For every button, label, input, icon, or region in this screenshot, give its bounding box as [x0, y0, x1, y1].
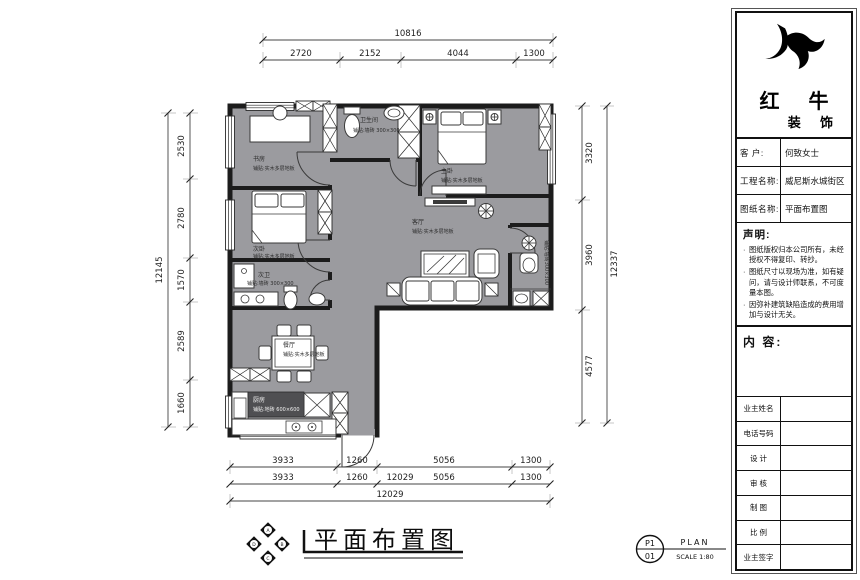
note-kitchen: 铺贴:地砖 600×600: [253, 406, 300, 413]
label-second: 次卧: [253, 245, 265, 253]
brand-area: 红 牛 装 饰: [737, 13, 851, 139]
sheet-ref: P1 01 PLAN SCALE 1:80: [637, 536, 727, 563]
sign-value: [781, 422, 851, 446]
dim-left-1: 2530: [177, 135, 187, 157]
sign-value: [781, 397, 851, 421]
sheet-scale: SCALE 1:80: [676, 553, 714, 561]
label-bath-top: 卫生间: [360, 116, 378, 124]
statement-section: 声明: 图纸版权归本公司所有，未经授权不得复印、转抄。 图纸尺寸以现场为准，如有…: [737, 223, 851, 327]
note-second: 铺贴:实木多层地板: [253, 253, 295, 260]
label-study: 书房: [253, 155, 265, 163]
sheet-code-bottom: 01: [645, 552, 655, 561]
kitchen-fixtures: [232, 392, 336, 435]
dim-top-total: 10816: [394, 29, 421, 39]
dim-left-3: 1570: [177, 269, 187, 291]
field-client-label: 客 户:: [737, 139, 781, 166]
label-dining: 餐厅: [283, 341, 295, 349]
plan-title: 平面布置图: [314, 527, 459, 554]
drawing-sheet: 10816 2720 2152 4044 1300 12145 2530 278…: [0, 0, 860, 580]
dim-top-3: 4044: [447, 49, 469, 59]
brand-name: 红 牛: [737, 85, 851, 114]
plan-title-group: A B C D 平面布置图: [246, 522, 463, 566]
sign-value: [781, 446, 851, 470]
sign-label: 制 图: [737, 496, 781, 520]
note-second-bath: 铺贴:墙砖 300×300: [247, 280, 294, 287]
label-living: 客厅: [412, 218, 424, 226]
field-project: 工程名称: 威尼斯水城街区: [737, 167, 851, 195]
sign-label: 电话号码: [737, 422, 781, 446]
sign-value: [781, 545, 851, 569]
signature-table: 业主姓名 电话号码 设 计 审 核 制 图 比 例 业主签字: [737, 397, 851, 569]
note-master: 铺贴:实木多层地板: [441, 177, 483, 184]
sheet-label: PLAN: [681, 538, 710, 547]
sign-row-owner-sign: 业主签字: [737, 545, 851, 569]
field-drawing-label: 图纸名称:: [737, 195, 781, 222]
sign-row-review: 审 核: [737, 471, 851, 496]
dim-bottom-r1-1: 3933: [272, 456, 294, 466]
compass-d: D: [252, 542, 256, 548]
label-kitchen: 厨房: [253, 396, 265, 404]
sign-label: 业主姓名: [737, 397, 781, 421]
sign-label: 审 核: [737, 471, 781, 495]
dim-left-5: 1660: [177, 392, 187, 414]
dim-left-4: 2589: [177, 330, 187, 352]
sign-row-scale: 比 例: [737, 521, 851, 546]
compass-c: C: [266, 556, 269, 562]
dim-top-1: 2720: [290, 49, 312, 59]
dimension-bottom: 3933 1260 5056 1300 3933 1260 12029 5056…: [227, 456, 554, 508]
dim-bottom-r1-4: 1300: [520, 456, 542, 466]
title-block: 红 牛 装 饰 客 户: 何致女士 工程名称: 威尼斯水城街区 图纸名称: 平面…: [735, 11, 853, 571]
field-project-label: 工程名称:: [737, 167, 781, 194]
dimension-right: 3320 3960 4577 12337: [575, 103, 620, 427]
floor-plan-svg: 10816 2720 2152 4044 1300 12145 2530 278…: [0, 0, 730, 580]
plan-body: 书房 铺贴:实木多层地板 卫生间 铺贴:墙砖 300×300 主卧 铺贴:实木多…: [226, 101, 556, 467]
statement-item: 图纸尺寸以现场为准，如有疑问，请与设计师联系，不可度量本图。: [743, 267, 846, 298]
sign-label: 比 例: [737, 521, 781, 545]
dim-top-4: 1300: [523, 49, 545, 59]
content-heading: 内 容:: [743, 333, 845, 350]
note-bath-right: 铺贴:墙砖300×300: [543, 240, 550, 285]
dim-bottom-r2-1: 3933: [272, 473, 294, 483]
dimension-top: 10816 2720 2152 4044 1300: [260, 29, 557, 68]
dim-bottom-r2-2: 1260: [346, 473, 368, 483]
sign-row-owner-name: 业主姓名: [737, 397, 851, 422]
field-drawing-value: 平面布置图: [781, 195, 851, 222]
statement-item: 因弥补建筑缺陷造成的费用增加与设计无关。: [743, 300, 846, 320]
dim-bottom-total: 12029: [376, 490, 403, 500]
dim-right-total: 12337: [610, 250, 620, 277]
sign-value: [781, 471, 851, 495]
note-living: 铺贴:实木多层地板: [412, 228, 454, 235]
dim-left-2: 2780: [177, 207, 187, 229]
sign-row-phone: 电话号码: [737, 422, 851, 447]
dim-bottom-r2-5: 1300: [520, 473, 542, 483]
kitchen-counter: [248, 392, 304, 417]
sign-value: [781, 496, 851, 520]
dim-bottom-r2-4: 5056: [433, 473, 455, 483]
sign-row-draft: 制 图: [737, 496, 851, 521]
sign-label: 设 计: [737, 446, 781, 470]
compass-icon: A B C D: [246, 522, 290, 566]
sheet-code-top: P1: [645, 539, 655, 548]
statement-heading: 声明:: [743, 227, 846, 242]
dim-bottom-r2-3: 12029: [386, 473, 413, 483]
second-bed: [252, 191, 306, 243]
dim-right-2: 3960: [585, 244, 595, 266]
sign-value: [781, 521, 851, 545]
brand-logo-icon: [763, 17, 827, 81]
field-drawing: 图纸名称: 平面布置图: [737, 195, 851, 223]
dim-bottom-r1-3: 5056: [433, 456, 455, 466]
label-master: 主卧: [441, 167, 453, 175]
content-section: 内 容:: [737, 327, 851, 397]
field-client-value: 何致女士: [781, 139, 851, 166]
dim-right-3: 4577: [585, 355, 595, 377]
compass-b: B: [280, 542, 283, 548]
note-study: 铺贴:实木多层地板: [253, 165, 295, 172]
dim-right-1: 3320: [585, 142, 595, 164]
dimension-left: 12145 2530 2780 1570 2589 1660: [155, 110, 198, 431]
statement-item: 图纸版权归本公司所有，未经授权不得复印、转抄。: [743, 245, 846, 265]
note-dining: 铺贴:实木多层地板: [283, 351, 325, 358]
sign-label: 业主签字: [737, 545, 781, 569]
plan-floor: [230, 106, 551, 435]
dim-left-total: 12145: [155, 256, 165, 283]
field-client: 客 户: 何致女士: [737, 139, 851, 167]
note-bath-top: 铺贴:墙砖 300×300: [353, 127, 400, 134]
brand-subname: 装 饰: [788, 112, 841, 131]
field-project-value: 威尼斯水城街区: [781, 167, 851, 194]
label-second-bath: 次卫: [258, 271, 270, 279]
sign-row-design: 设 计: [737, 446, 851, 471]
dim-top-2: 2152: [359, 49, 381, 59]
